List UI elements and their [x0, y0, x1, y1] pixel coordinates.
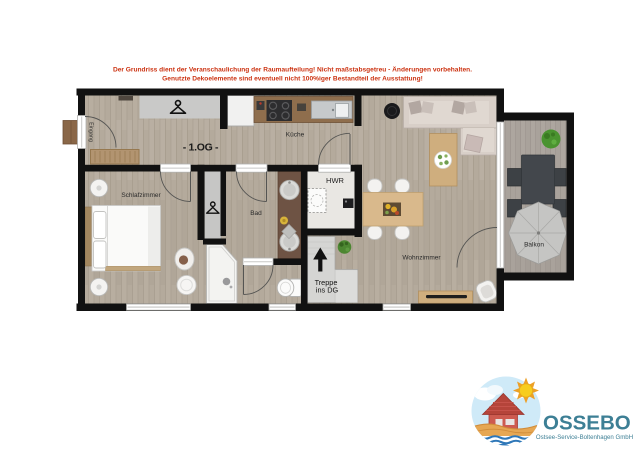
svg-text:Schlafzimmer: Schlafzimmer — [121, 192, 161, 199]
svg-text:Bad: Bad — [250, 210, 262, 217]
svg-text:Küche: Küche — [286, 132, 305, 139]
svg-text:Genutzte Dekoelemente sind eve: Genutzte Dekoelemente sind eventuell nic… — [162, 76, 423, 83]
svg-text:HWR: HWR — [326, 176, 344, 185]
svg-text:OSSEBO: OSSEBO — [543, 412, 631, 435]
svg-text:Wohnzimmer: Wohnzimmer — [402, 255, 441, 262]
svg-text:- 1.OG -: - 1.OG - — [183, 142, 219, 154]
svg-text:Ostsee-Service-Boltenhagen Gmb: Ostsee-Service-Boltenhagen GmbH — [536, 434, 633, 441]
svg-text:Der Grundriss dient der Verans: Der Grundriss dient der Veranschaulichun… — [113, 66, 472, 74]
svg-text:Balkon: Balkon — [524, 242, 544, 249]
svg-text:ins DG: ins DG — [316, 285, 339, 294]
svg-text:Eingang: Eingang — [88, 122, 94, 142]
